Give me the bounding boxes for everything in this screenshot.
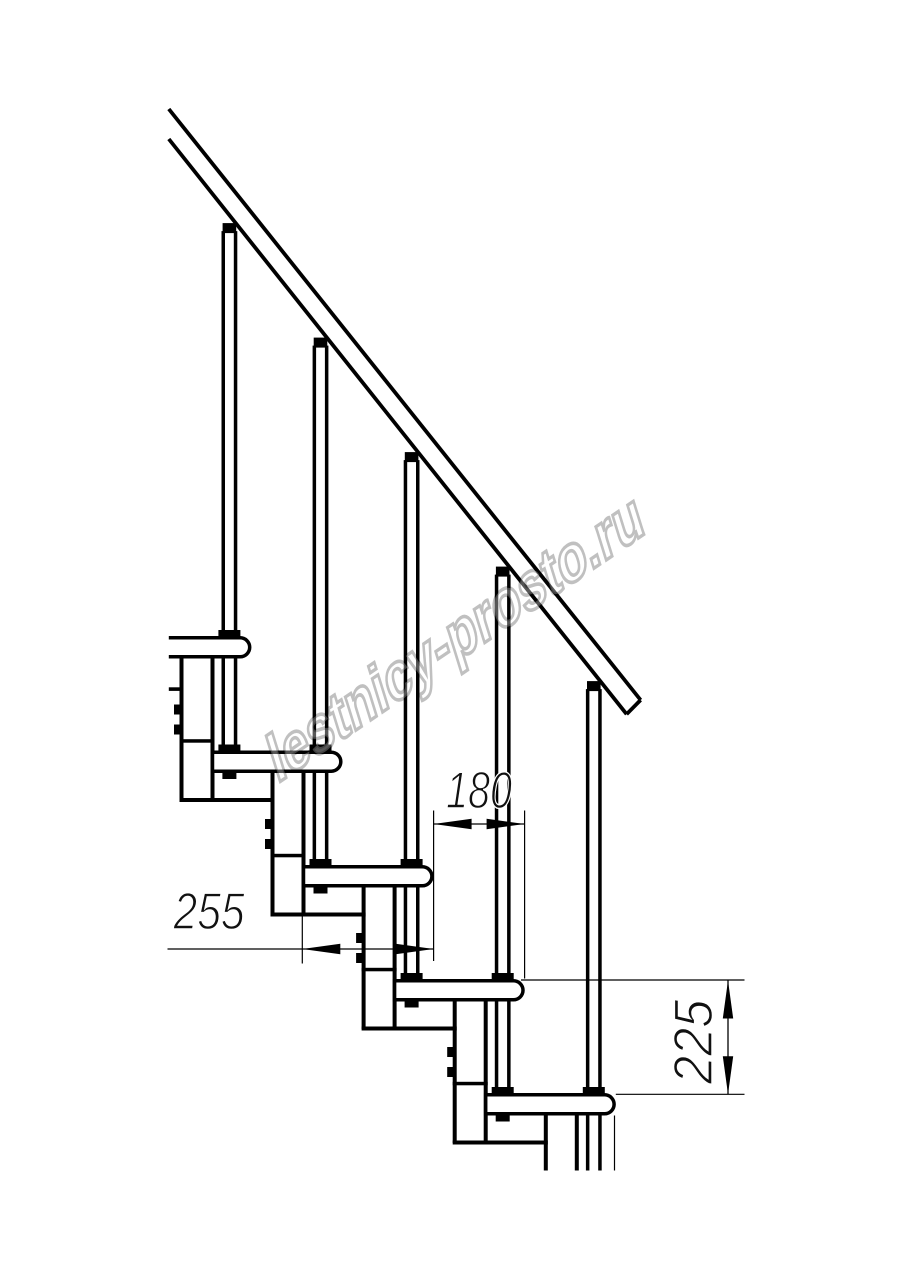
svg-text:lestnicy-prosto.ru: lestnicy-prosto.ru (260, 476, 652, 798)
svg-text:255: 255 (173, 883, 246, 941)
svg-text:180: 180 (446, 761, 512, 820)
svg-text:225: 225 (663, 999, 724, 1085)
